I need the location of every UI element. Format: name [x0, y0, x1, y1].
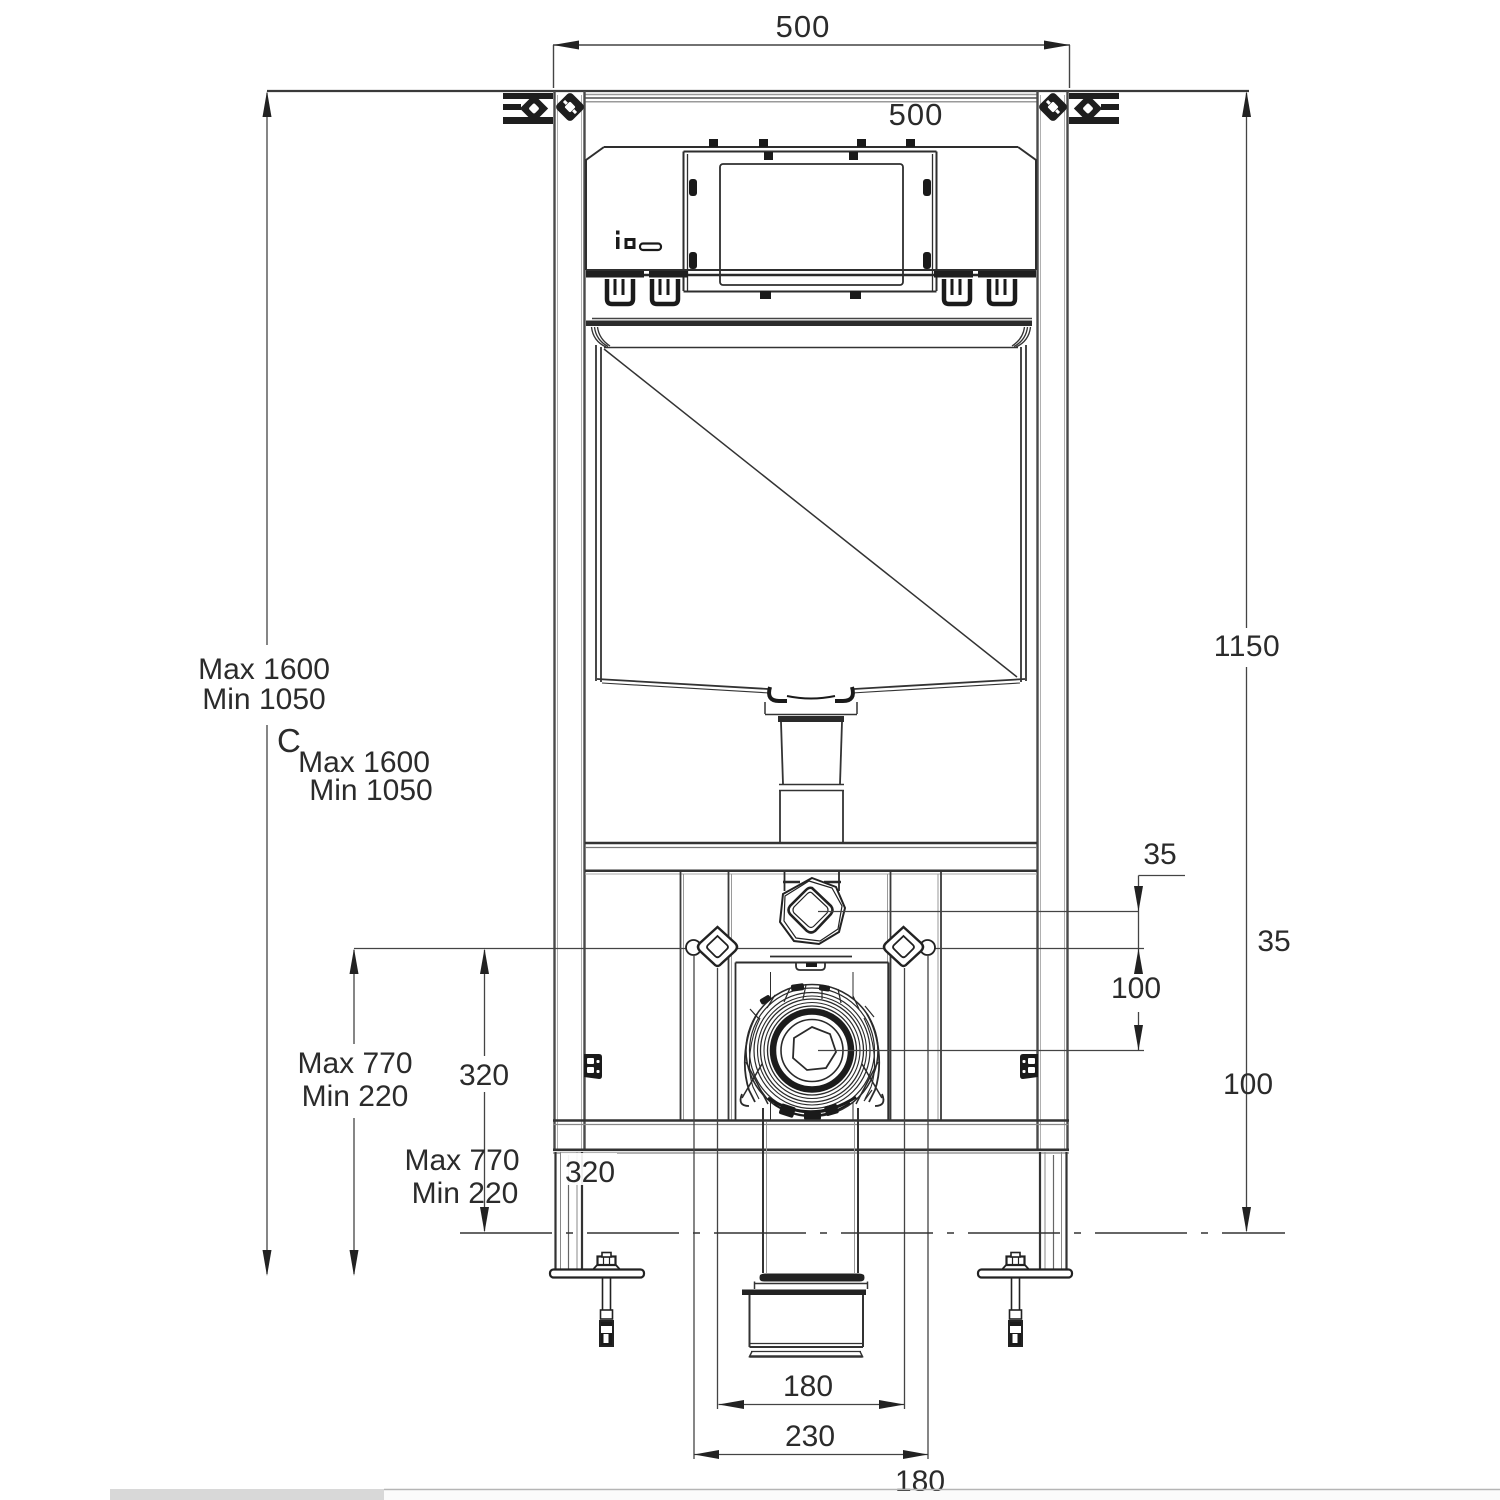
svg-text:180: 180 [783, 1370, 833, 1403]
svg-text:320: 320 [565, 1156, 615, 1189]
svg-text:35: 35 [1257, 925, 1290, 958]
svg-text:Max 1600: Max 1600 [198, 653, 330, 686]
svg-text:Max 770: Max 770 [404, 1144, 519, 1177]
svg-text:Min 1050: Min 1050 [309, 774, 432, 807]
svg-text:230: 230 [785, 1420, 835, 1453]
svg-text:Min 220: Min 220 [302, 1080, 409, 1113]
svg-text:500: 500 [889, 97, 944, 132]
svg-text:1150: 1150 [1214, 630, 1281, 663]
svg-text:35: 35 [1143, 838, 1176, 871]
svg-text:Min 1050: Min 1050 [202, 683, 325, 716]
svg-text:100: 100 [1223, 1068, 1273, 1101]
svg-text:320: 320 [459, 1059, 509, 1092]
svg-text:Min 220: Min 220 [412, 1177, 519, 1210]
svg-text:100: 100 [1111, 972, 1161, 1005]
svg-text:500: 500 [776, 9, 831, 44]
svg-text:Max 770: Max 770 [297, 1047, 412, 1080]
